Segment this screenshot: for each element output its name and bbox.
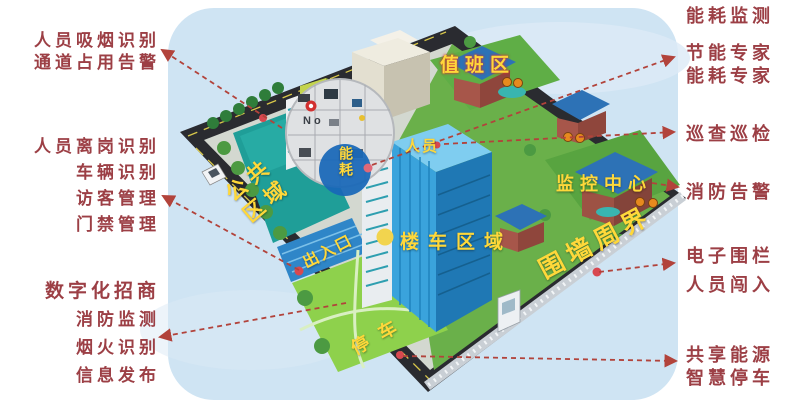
annotation-smart-parking: 智慧停车 <box>686 367 808 390</box>
scene-label-duty-area: 值班区 <box>440 50 515 77</box>
annotation-visitor-management: 访客管理 <box>0 186 160 212</box>
building-area-dot <box>377 229 394 246</box>
annotation-electronic-fence: 电子围栏 <box>686 242 808 271</box>
annotation-energy-saving-expert: 节能专家 <box>686 42 808 65</box>
annotation-shared-energy: 共享能源 <box>686 344 808 367</box>
annotation-vehicle-recognition: 车辆识别 <box>0 160 160 186</box>
annotation-off-duty: 人员离岗识别 <box>0 134 160 160</box>
annotation-group-patrol: 巡查巡检 <box>686 123 808 146</box>
annotation-energy-consumption-expert: 能耗专家 <box>686 65 808 88</box>
annotation-channel-occupation: 通道占用告警 <box>0 52 160 74</box>
annotation-group-energy-monitor: 能耗监测 <box>686 5 808 28</box>
annotation-group-fence: 电子围栏 人员闯入 <box>686 242 808 300</box>
scene-label-building-vehicle-area: 楼车区域 <box>400 227 512 254</box>
annotation-group-shared: 共享能源 智慧停车 <box>686 344 808 390</box>
annotation-fire-alarm: 消防告警 <box>686 181 808 204</box>
annotation-access-control: 门禁管理 <box>0 212 160 238</box>
scene-label-personnel: 人员 <box>405 135 439 156</box>
scene-label-monitor-center: 监控中心 <box>556 170 652 196</box>
annotation-group-energy-expert: 节能专家 能耗专家 <box>686 42 808 88</box>
annotation-patrol-inspection: 巡查巡检 <box>686 123 808 146</box>
smart-park-infographic: { "colors": { "label_red": "#9C3F45", "a… <box>0 0 808 405</box>
annotation-group-smoking: 人员吸烟识别 通道占用告警 <box>0 30 156 74</box>
annotation-digital-investment: 数字化招商 <box>0 278 160 306</box>
annotation-smoke-fire-recognition: 烟火识别 <box>0 334 160 362</box>
magnifier-no-text: No <box>303 115 324 127</box>
annotation-group-digital: 数字化招商 消防监测 烟火识别 信息发布 <box>0 278 156 390</box>
scene-label-energy-badge: 能耗 <box>336 146 356 178</box>
annotation-group-access: 人员离岗识别 车辆识别 访客管理 门禁管理 <box>0 134 156 238</box>
annotation-energy-monitoring: 能耗监测 <box>686 5 808 28</box>
annotation-group-fire-alarm: 消防告警 <box>686 181 808 204</box>
annotation-info-release: 信息发布 <box>0 362 160 390</box>
annotation-fire-monitoring: 消防监测 <box>0 306 160 334</box>
annotation-smoking: 人员吸烟识别 <box>0 30 160 52</box>
annotation-intrusion: 人员闯入 <box>686 271 808 300</box>
